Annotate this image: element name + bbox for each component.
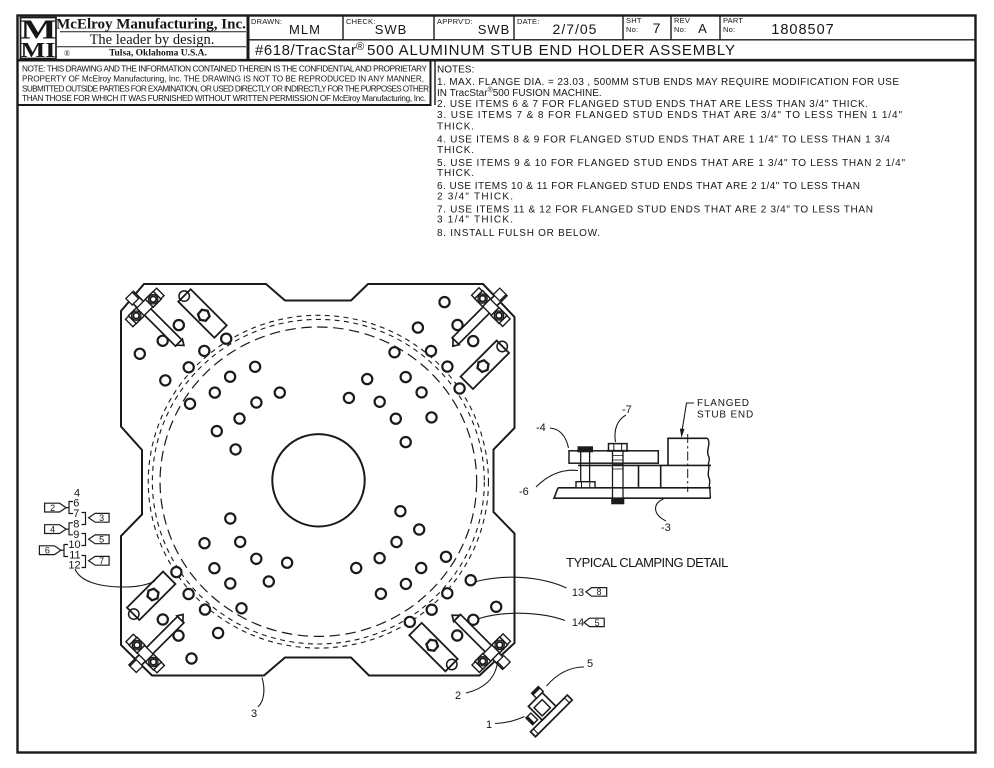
- svg-text:THICK.: THICK.: [437, 122, 474, 133]
- svg-text:SHT: SHT: [626, 16, 642, 25]
- svg-text:SUBMITTED OUTSIDE PARTIES FOR: SUBMITTED OUTSIDE PARTIES FOR EXAMINATIO…: [22, 84, 429, 93]
- svg-text:1808507: 1808507: [771, 22, 834, 38]
- svg-text:12: 12: [68, 560, 80, 572]
- svg-text:6: 6: [45, 545, 50, 555]
- svg-text:3. USE ITEMS 7 & 8 FOR FLANGED: 3. USE ITEMS 7 & 8 FOR FLANGED STUD ENDS…: [437, 110, 902, 121]
- svg-text:4. USE ITEMS 8 & 9 FOR FLANGED: 4. USE ITEMS 8 & 9 FOR FLANGED STUD ENDS…: [437, 135, 890, 146]
- svg-text:STUB END: STUB END: [697, 410, 754, 421]
- svg-text:8. INSTALL FULSH OR BELOW.: 8. INSTALL FULSH OR BELOW.: [437, 228, 600, 239]
- svg-text:IN TracStar®500 FUSION MACHINE: IN TracStar®500 FUSION MACHINE.: [437, 86, 602, 99]
- svg-text:5: 5: [594, 618, 599, 628]
- svg-text:PART: PART: [723, 16, 743, 25]
- svg-text:8: 8: [596, 587, 601, 597]
- svg-text:SWB: SWB: [375, 22, 408, 37]
- svg-text:No:: No:: [626, 25, 638, 34]
- svg-text:McElroy Manufacturing, Inc.: McElroy Manufacturing, Inc.: [56, 17, 246, 33]
- svg-text:THICK.: THICK.: [437, 168, 474, 179]
- svg-text:DRAWN:: DRAWN:: [251, 17, 282, 26]
- svg-text:14: 14: [572, 617, 584, 629]
- svg-text:-7: -7: [622, 404, 632, 416]
- svg-text:NOTE: THIS DRAWING AND THE INF: NOTE: THIS DRAWING AND THE INFORMATION C…: [22, 65, 428, 74]
- svg-text:SWB: SWB: [478, 22, 511, 37]
- svg-text:3: 3: [251, 708, 257, 720]
- svg-text:-3: -3: [661, 522, 671, 534]
- svg-text:®: ®: [64, 49, 70, 58]
- svg-text:THAN THOSE FOR WHICH IT WAS FU: THAN THOSE FOR WHICH IT WAS FURNISHED WI…: [22, 94, 426, 103]
- svg-text:2/7/05: 2/7/05: [553, 21, 598, 37]
- svg-text:7: 7: [653, 20, 662, 36]
- svg-text:MLM: MLM: [289, 22, 321, 37]
- svg-text:4: 4: [50, 524, 55, 534]
- svg-text:2. USE ITEMS 6 & 7 FOR FLANGED: 2. USE ITEMS 6 & 7 FOR FLANGED STUD ENDS…: [437, 99, 868, 110]
- svg-text:FLANGED: FLANGED: [697, 398, 750, 409]
- svg-text:5: 5: [587, 658, 593, 670]
- svg-text:#618/TracStar: #618/TracStar: [255, 42, 356, 59]
- svg-text:TYPICAL CLAMPING DETAIL: TYPICAL CLAMPING DETAIL: [566, 555, 729, 570]
- svg-text:5. USE ITEMS 9 & 10 FOR FLANGE: 5. USE ITEMS 9 & 10 FOR FLANGED STUD END…: [437, 158, 905, 169]
- svg-text:®: ®: [356, 41, 364, 53]
- svg-text:No:: No:: [723, 25, 735, 34]
- svg-text:-4: -4: [536, 422, 546, 434]
- svg-text:REV: REV: [674, 16, 690, 25]
- svg-text:500 ALUMINUM STUB END HOLDER A: 500 ALUMINUM STUB END HOLDER ASSEMBLY: [367, 42, 735, 59]
- svg-text:CHECK:: CHECK:: [346, 17, 376, 26]
- svg-text:3: 3: [99, 513, 104, 523]
- svg-text:1: 1: [486, 719, 492, 731]
- svg-text:The leader by design.: The leader by design.: [90, 32, 215, 48]
- svg-text:A: A: [698, 21, 708, 36]
- svg-text:No:: No:: [674, 25, 686, 34]
- svg-text:-6: -6: [519, 486, 529, 498]
- svg-text:DATE:: DATE:: [517, 17, 540, 26]
- svg-text:7: 7: [99, 556, 104, 566]
- svg-text:1. MAX. FLANGE DIA. = 23.03 ,: 1. MAX. FLANGE DIA. = 23.03 , 500MM STUB…: [437, 77, 899, 88]
- svg-text:2: 2: [50, 503, 55, 513]
- svg-text:3 1/4" THICK.: 3 1/4" THICK.: [437, 215, 513, 226]
- svg-text:APPRV'D:: APPRV'D:: [437, 17, 473, 26]
- svg-text:13: 13: [572, 587, 584, 599]
- svg-text:2: 2: [455, 690, 461, 702]
- svg-text:Tulsa, Oklahoma U.S.A.: Tulsa, Oklahoma U.S.A.: [109, 49, 207, 59]
- svg-text:MI: MI: [21, 39, 56, 62]
- svg-text:NOTES:: NOTES:: [437, 65, 474, 76]
- svg-text:PROPERTY OF McElroy Manufactur: PROPERTY OF McElroy Manufacturing, Inc. …: [22, 74, 424, 83]
- svg-text:2 3/4" THICK.: 2 3/4" THICK.: [437, 191, 513, 202]
- svg-text:5: 5: [99, 535, 104, 545]
- svg-text:THICK.: THICK.: [437, 145, 474, 156]
